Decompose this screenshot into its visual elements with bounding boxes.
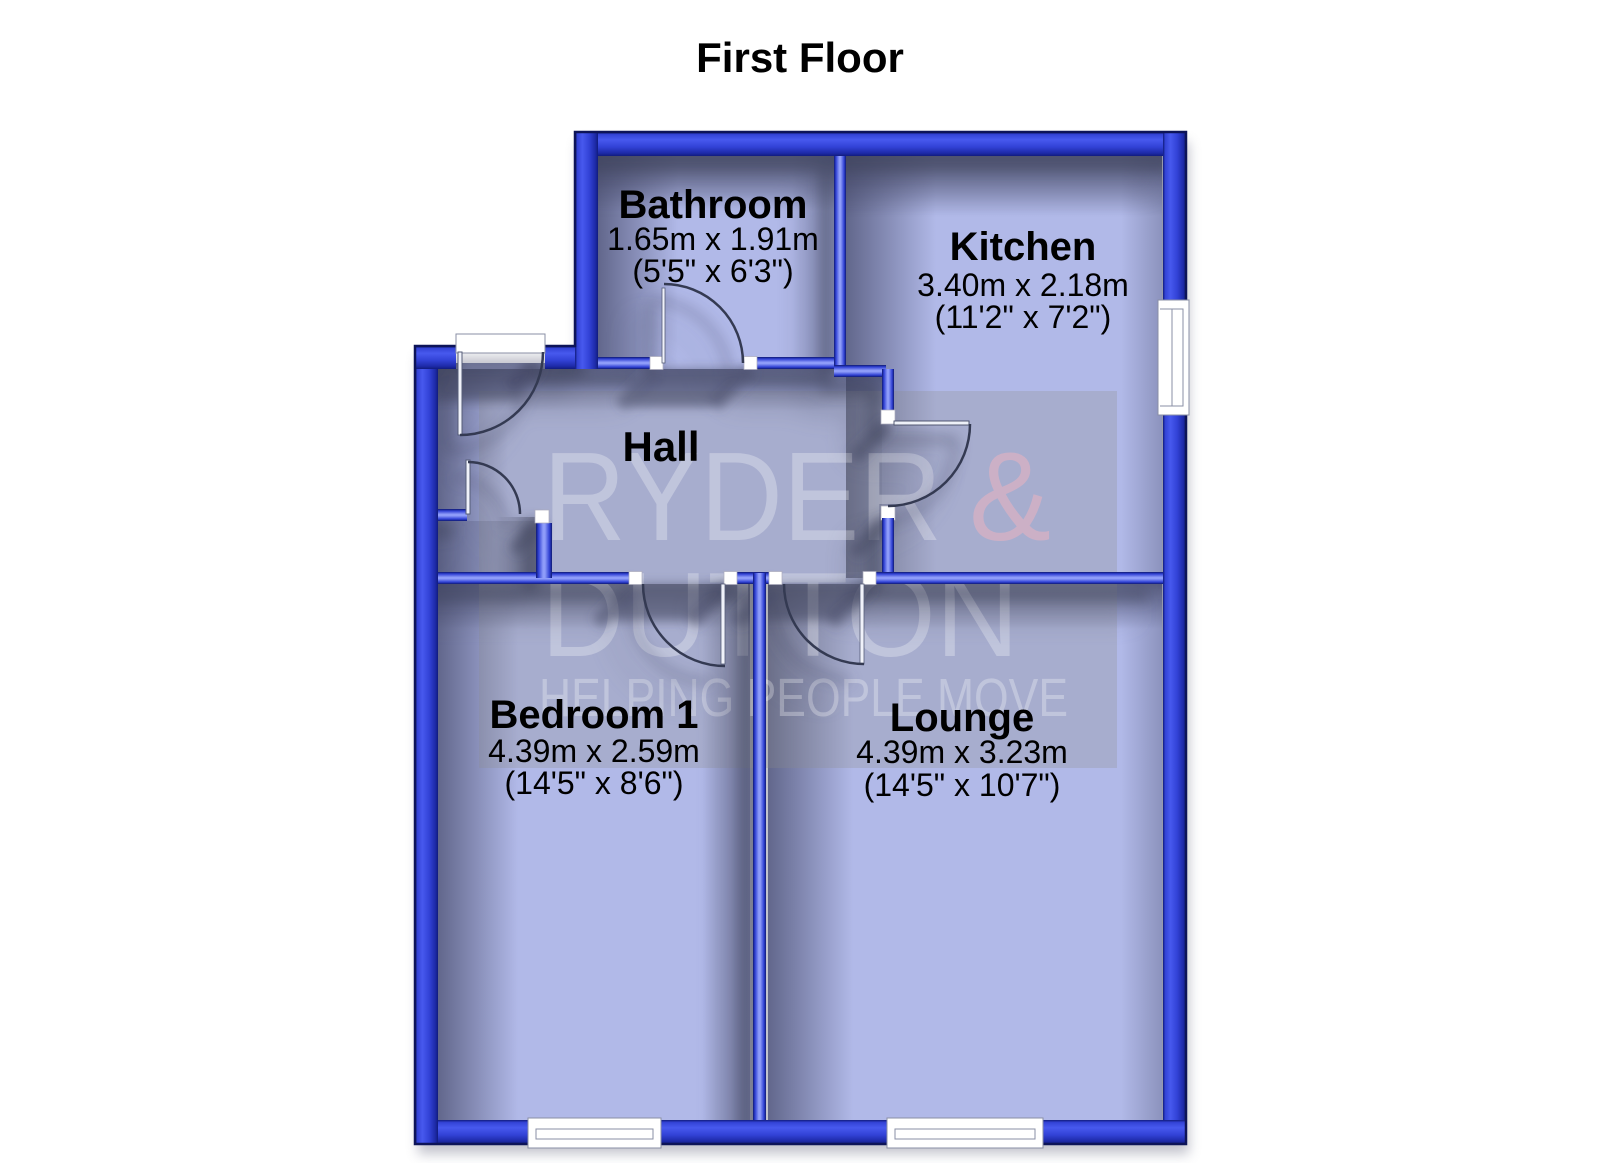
svg-text:4.39m x 3.23m: 4.39m x 3.23m xyxy=(856,734,1068,770)
svg-text:3.40m x 2.18m: 3.40m x 2.18m xyxy=(917,267,1129,303)
svg-text:Hall: Hall xyxy=(622,423,699,470)
svg-text:&: & xyxy=(969,426,1051,567)
svg-text:(11'2" x 7'2"): (11'2" x 7'2") xyxy=(935,299,1112,335)
svg-text:(14'5" x 8'6"): (14'5" x 8'6") xyxy=(504,765,683,801)
svg-text:Kitchen: Kitchen xyxy=(950,225,1097,269)
svg-text:(5'5" x 6'3"): (5'5" x 6'3") xyxy=(632,253,793,289)
svg-text:1.65m x 1.91m: 1.65m x 1.91m xyxy=(607,221,819,257)
svg-text:First Floor: First Floor xyxy=(696,34,904,81)
svg-text:Bedroom 1: Bedroom 1 xyxy=(490,693,699,737)
svg-text:4.39m x 2.59m: 4.39m x 2.59m xyxy=(488,733,700,769)
svg-text:(14'5" x 10'7"): (14'5" x 10'7") xyxy=(864,767,1061,803)
